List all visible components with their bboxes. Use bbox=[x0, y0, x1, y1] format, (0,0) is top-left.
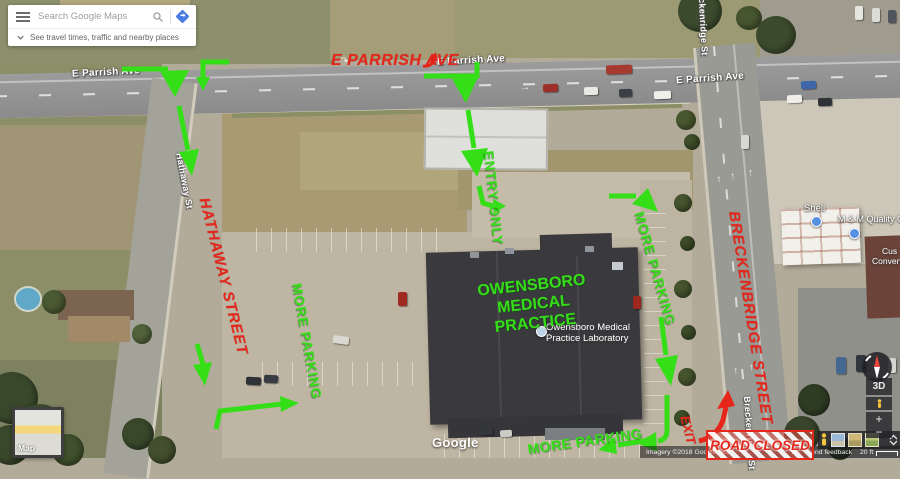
chevron-down-icon bbox=[17, 34, 24, 41]
search-card: See travel times, traffic and nearby pla… bbox=[8, 5, 196, 46]
imagery-thumbnail[interactable] bbox=[831, 433, 845, 447]
google-maps-app: { "app": { "search_placeholder": "Search… bbox=[0, 0, 900, 458]
car bbox=[584, 87, 598, 95]
dirt-area bbox=[330, 0, 460, 60]
road-marking: → bbox=[520, 82, 530, 93]
pegman-icon bbox=[876, 399, 883, 409]
scale-bar bbox=[876, 451, 898, 456]
pegman-button[interactable] bbox=[866, 397, 892, 410]
search-icon[interactable] bbox=[152, 11, 164, 23]
car bbox=[741, 135, 749, 149]
travel-times-label: See travel times, traffic and nearby pla… bbox=[30, 33, 179, 42]
tilt-3d-button[interactable]: 3D bbox=[866, 378, 892, 395]
note-e-parrish-ave: E PARRISH AVE bbox=[331, 52, 459, 70]
menu-icon[interactable] bbox=[16, 10, 30, 24]
place-pin-shell[interactable] bbox=[811, 216, 822, 227]
travel-times-bar[interactable]: See travel times, traffic and nearby pla… bbox=[8, 29, 196, 46]
car bbox=[836, 357, 846, 374]
car bbox=[818, 98, 832, 106]
car bbox=[855, 6, 863, 20]
zoom-in-button[interactable]: + bbox=[866, 412, 892, 425]
google-logo: Google bbox=[432, 435, 479, 450]
car bbox=[398, 292, 407, 306]
car bbox=[787, 95, 802, 104]
medical-practice-building bbox=[540, 233, 613, 257]
map-mode-toggle[interactable]: Map bbox=[12, 407, 64, 458]
place-label-partial-2: Conven bbox=[872, 256, 900, 266]
truck bbox=[606, 65, 632, 75]
parking-stalls bbox=[242, 228, 437, 252]
imagery-thumbnail[interactable] bbox=[848, 433, 862, 447]
car bbox=[619, 89, 632, 97]
pegman-icon[interactable] bbox=[820, 433, 828, 447]
search-input[interactable] bbox=[36, 10, 150, 23]
place-label-shell[interactable]: Shell bbox=[804, 203, 825, 214]
place-label-mm-quality[interactable]: M & M Quality One bbox=[838, 214, 900, 224]
map-toggle-label: Map bbox=[18, 443, 35, 453]
pool bbox=[14, 286, 42, 312]
car bbox=[246, 377, 261, 386]
scale-label: 20 ft bbox=[860, 449, 873, 456]
place-label-partial-1: Cus bbox=[882, 246, 897, 256]
house bbox=[68, 316, 130, 342]
car bbox=[872, 8, 880, 22]
car bbox=[801, 81, 816, 90]
car bbox=[500, 430, 512, 438]
car bbox=[543, 84, 558, 93]
car bbox=[654, 91, 671, 100]
dirt-area bbox=[0, 125, 152, 250]
car bbox=[888, 10, 896, 23]
directions-icon[interactable] bbox=[175, 9, 190, 24]
place-pin-mm-quality[interactable] bbox=[849, 228, 860, 239]
road-closed-label: ROAD CLOSED bbox=[710, 438, 810, 453]
car bbox=[480, 428, 493, 436]
road-closed-sign: ROAD CLOSED bbox=[706, 430, 814, 460]
zoom-out-button[interactable]: − bbox=[866, 425, 892, 438]
car bbox=[633, 296, 641, 309]
car bbox=[264, 375, 278, 384]
